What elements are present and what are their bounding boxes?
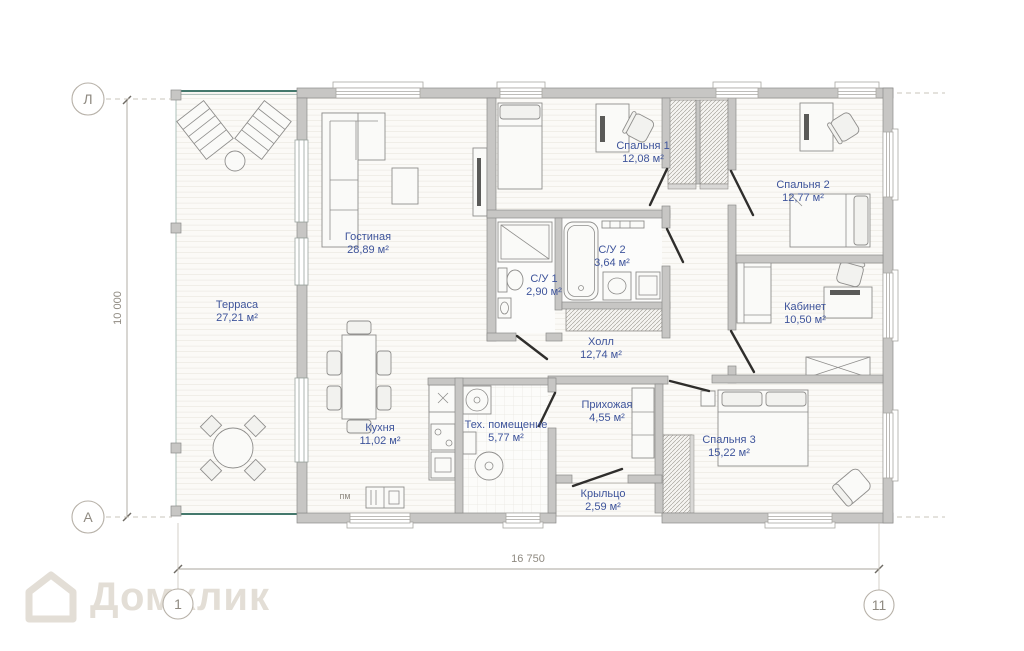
tech-shelf bbox=[463, 432, 476, 454]
axis-label-row-top: Л bbox=[83, 91, 92, 107]
terrace-table bbox=[213, 428, 253, 468]
floorplan-page: Домклик bbox=[0, 0, 1024, 651]
side-table bbox=[225, 151, 245, 171]
window bbox=[883, 410, 898, 481]
wardrobe-bedroom3 bbox=[663, 435, 692, 513]
wc1-sink bbox=[498, 298, 511, 318]
bed-single-1 bbox=[498, 103, 542, 189]
office-desk bbox=[824, 287, 872, 318]
axis-label-col-end: 11 bbox=[872, 597, 887, 613]
window bbox=[503, 513, 543, 528]
coffee-table bbox=[392, 168, 418, 204]
window bbox=[713, 82, 761, 98]
wardrobe-corridor-2 bbox=[700, 100, 728, 184]
wardrobe-hall bbox=[566, 307, 662, 331]
towel-rail bbox=[602, 221, 644, 228]
water-heater bbox=[463, 386, 491, 414]
kitchen-counter bbox=[429, 385, 457, 480]
axis-label-col-start: 1 bbox=[174, 596, 182, 612]
wardrobe-corridor-1 bbox=[668, 100, 696, 184]
terrace-post bbox=[171, 443, 181, 453]
terrace-post bbox=[171, 506, 181, 516]
glass-door bbox=[295, 378, 308, 462]
window bbox=[835, 82, 879, 98]
dimension-height: 10 000 bbox=[112, 291, 124, 325]
office-sofa bbox=[737, 259, 771, 323]
nightstand bbox=[701, 391, 715, 406]
window bbox=[497, 82, 545, 98]
axis-label-row-bottom: А bbox=[83, 509, 93, 525]
bathtub bbox=[564, 222, 598, 300]
tv-unit bbox=[473, 148, 487, 216]
toilet bbox=[498, 268, 523, 292]
window bbox=[883, 270, 898, 341]
porch-floor bbox=[556, 483, 662, 516]
boiler bbox=[475, 452, 503, 480]
window bbox=[347, 513, 413, 528]
bed-single-2 bbox=[790, 194, 870, 247]
bed-double bbox=[718, 390, 808, 466]
wc2-washer bbox=[636, 272, 660, 299]
entry-cabinet bbox=[632, 388, 654, 458]
shower bbox=[498, 222, 552, 262]
glass-door bbox=[295, 238, 308, 285]
floorplan-svg: 16 750 10 000 Л А 1 11 bbox=[0, 0, 1024, 651]
terrace-post bbox=[171, 223, 181, 233]
vanity-sink bbox=[603, 272, 631, 300]
dimension-width: 16 750 bbox=[511, 553, 545, 565]
window bbox=[883, 129, 898, 200]
glass-door bbox=[295, 140, 308, 222]
window bbox=[333, 82, 423, 98]
window bbox=[765, 513, 835, 528]
washing-machine bbox=[366, 487, 404, 508]
terrace-post bbox=[171, 90, 181, 100]
